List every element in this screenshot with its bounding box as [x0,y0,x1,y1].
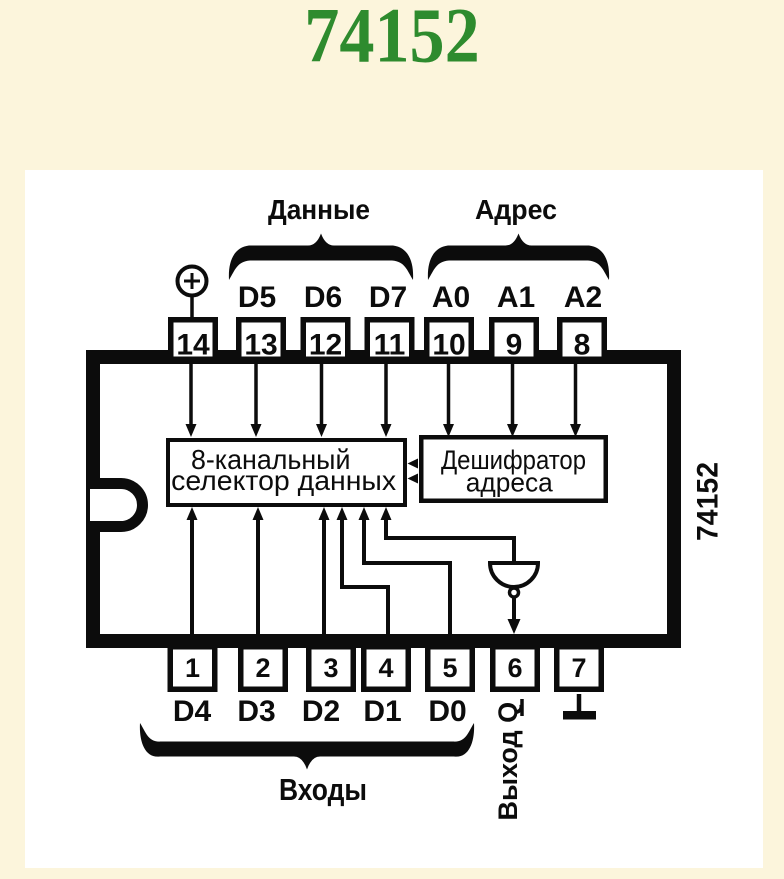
svg-text:6: 6 [507,653,522,683]
svg-text:D4: D4 [173,695,212,728]
svg-text:Выход Q: Выход Q [493,702,523,821]
svg-text:A1: A1 [497,281,535,314]
svg-text:74152: 74152 [304,0,479,79]
svg-text:10: 10 [432,329,465,362]
svg-text:D2: D2 [302,695,340,728]
svg-text:2: 2 [255,653,270,683]
svg-text:9: 9 [506,329,523,362]
svg-text:4: 4 [378,653,393,683]
svg-text:Входы: Входы [279,772,367,807]
svg-text:D3: D3 [237,695,275,728]
svg-text:12: 12 [309,329,342,362]
svg-text:D6: D6 [304,281,342,314]
svg-text:Данные: Данные [268,194,370,225]
svg-text:D5: D5 [238,281,276,314]
svg-text:селектор данных: селектор данных [171,465,396,496]
svg-text:3: 3 [323,653,338,683]
svg-text:13: 13 [244,329,277,362]
svg-text:1: 1 [185,653,200,683]
svg-text:A2: A2 [564,281,602,314]
svg-text:адреса: адреса [466,468,554,498]
svg-text:14: 14 [176,329,210,362]
svg-text:11: 11 [374,329,406,362]
svg-text:D0: D0 [428,695,466,728]
svg-text:5: 5 [442,653,457,683]
svg-text:74152: 74152 [692,462,725,541]
svg-text:D1: D1 [363,695,401,728]
svg-text:7: 7 [571,653,586,683]
svg-text:D7: D7 [369,281,407,314]
svg-text:A0: A0 [432,281,470,314]
svg-text:8: 8 [574,329,591,362]
svg-text:Адрес: Адрес [475,194,557,225]
